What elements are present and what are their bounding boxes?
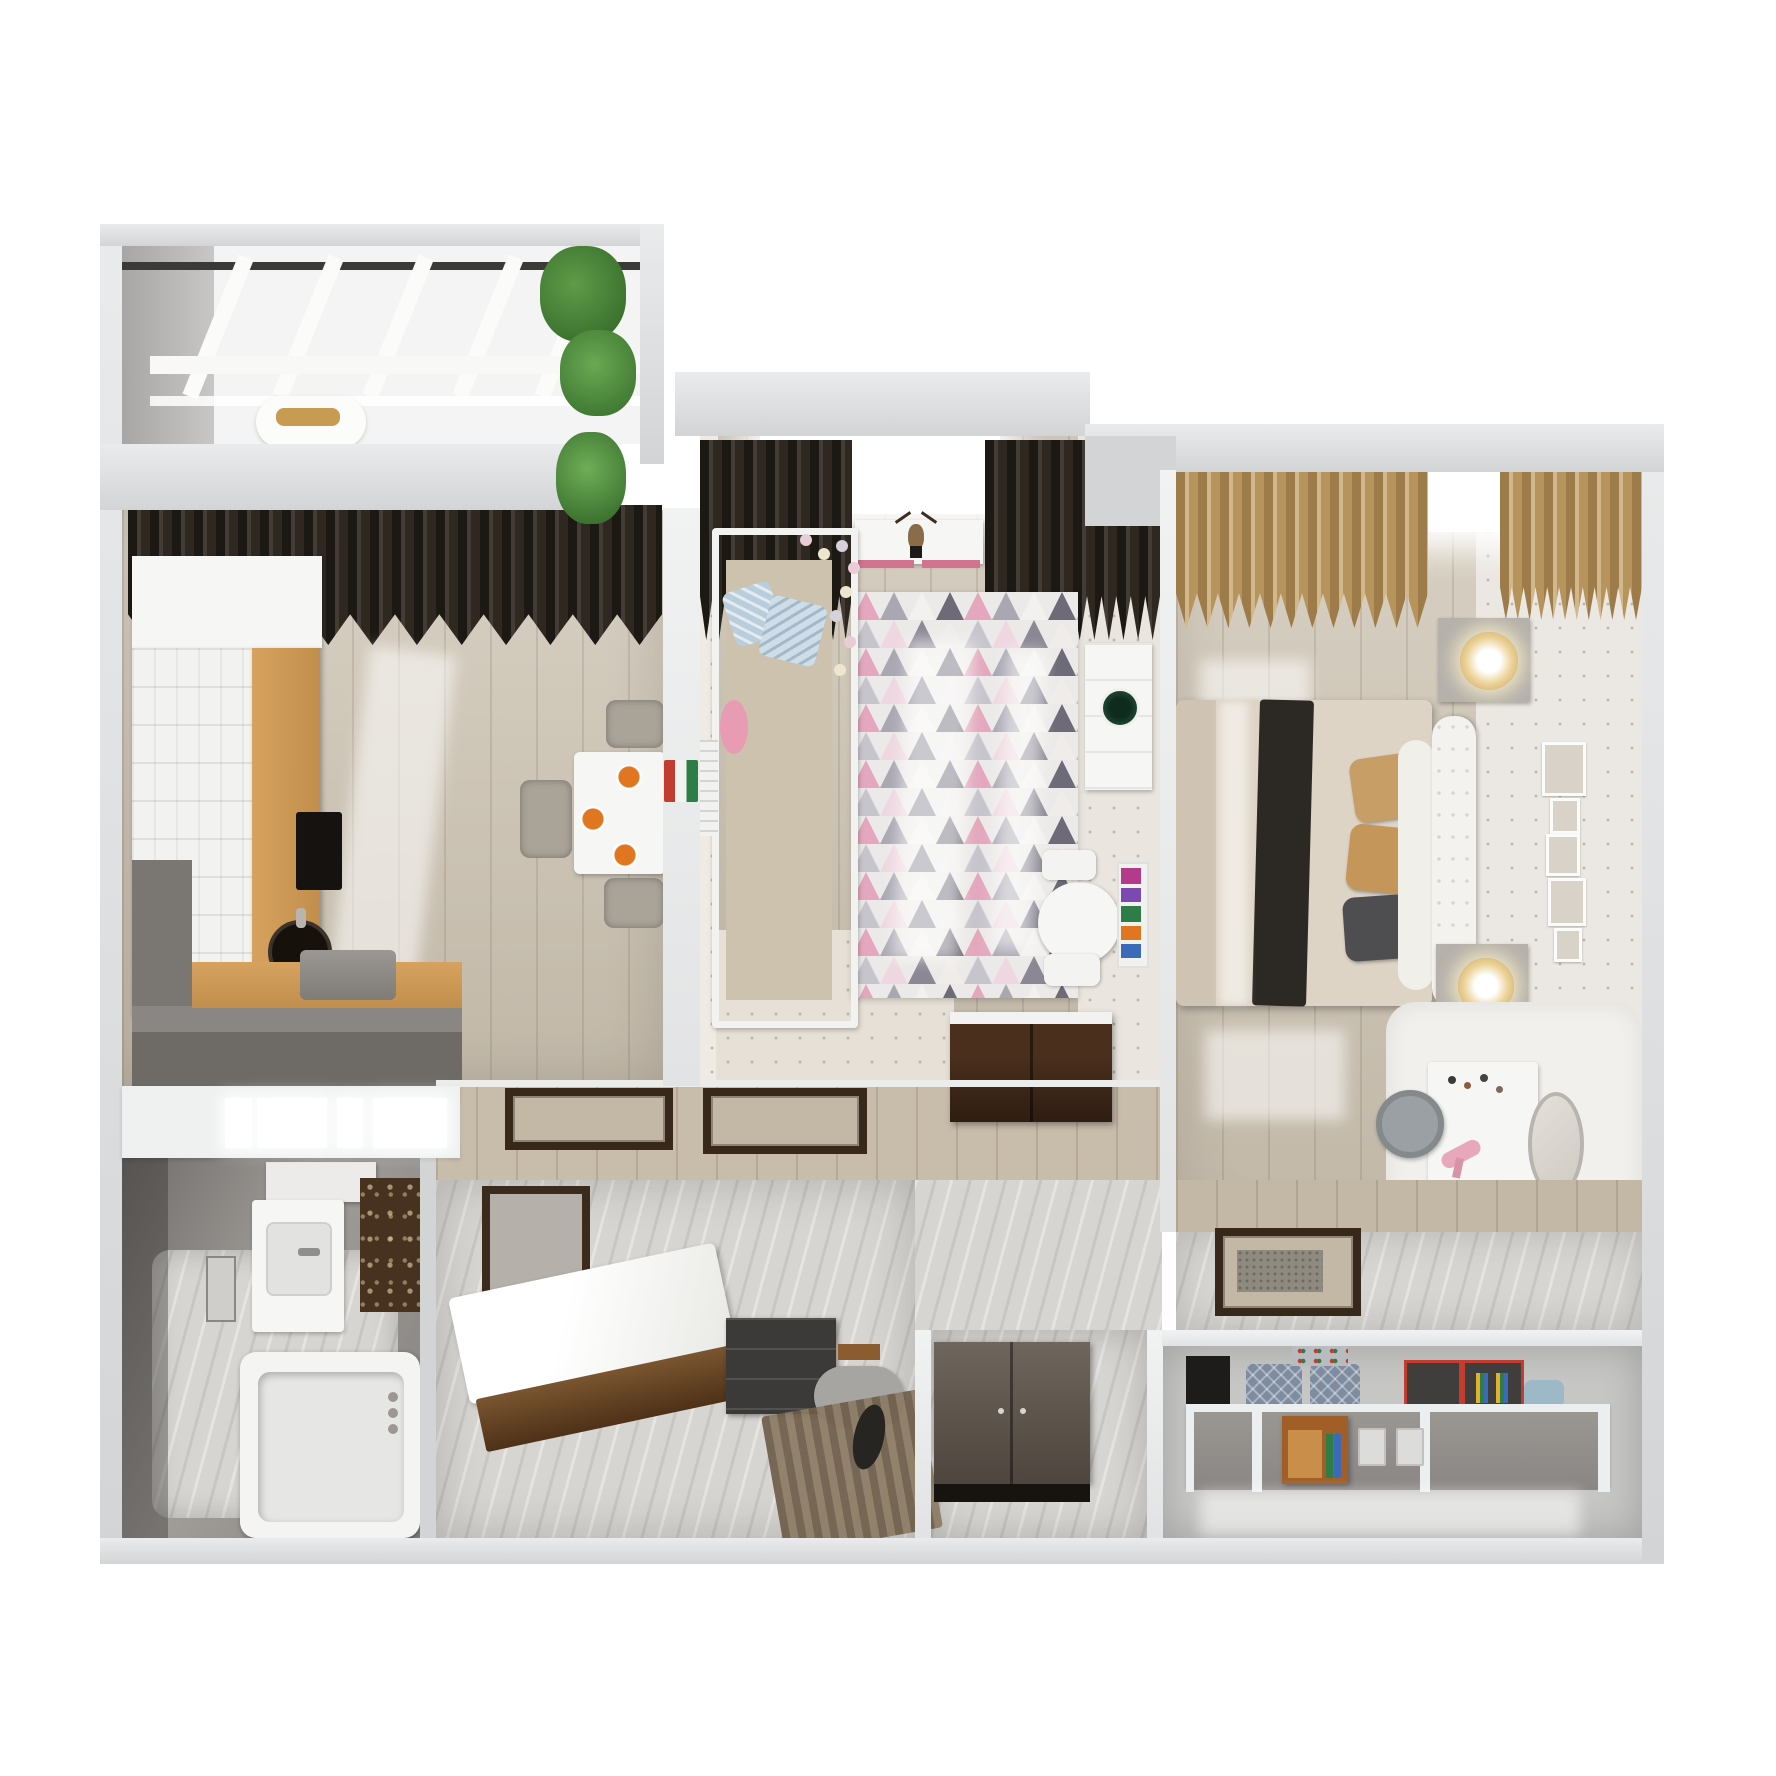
- wood-cabinet-panel: [1288, 1430, 1322, 1478]
- bathroom-mirror: [206, 1256, 236, 1322]
- frosted-panel: [337, 1098, 363, 1148]
- pillow-white: [1398, 740, 1434, 990]
- garland-ball-icon: [834, 664, 846, 676]
- cosmetics-icon: [1480, 1074, 1488, 1082]
- nook-cabinet-base: [934, 1484, 1090, 1502]
- kids-chair: [1044, 954, 1100, 986]
- white-storage-box: [1358, 1428, 1386, 1466]
- shelf-pink-trim: [858, 560, 914, 568]
- wire-basket: [1292, 1346, 1348, 1366]
- book-icon: [1121, 926, 1141, 940]
- kids-table: [1038, 882, 1120, 964]
- partition-rail: [1186, 1404, 1610, 1412]
- kitchen-peninsula: [132, 1006, 462, 1086]
- garland-ball-icon: [800, 534, 812, 546]
- wall-nursery-bedroom: [1160, 470, 1176, 1232]
- shelf-pink-trim: [922, 560, 980, 568]
- frosted-panel: [373, 1098, 447, 1148]
- bed-dark-stripe: [1252, 699, 1314, 1006]
- plate-icon: [616, 764, 642, 790]
- book-icon: [1121, 888, 1141, 902]
- garland-ball-icon: [830, 610, 842, 622]
- plate-icon: [612, 842, 638, 868]
- kitchen-peninsula-side: [132, 860, 192, 1010]
- cosmetics-icon: [1496, 1086, 1503, 1093]
- cosmetics-icon: [1464, 1082, 1471, 1089]
- bread-bin: [300, 950, 396, 1000]
- cosmetics-icon: [1448, 1076, 1456, 1084]
- bed-highlight: [1220, 702, 1248, 1004]
- floorplan-stage: [0, 0, 1776, 1776]
- picture-frame: [1548, 878, 1586, 926]
- wall-outer-left: [100, 224, 122, 1564]
- wall-hallway-nook: [915, 1330, 931, 1538]
- wall-nook-storage: [1147, 1330, 1163, 1538]
- vanity-stool: [1376, 1090, 1444, 1158]
- deer-scarf: [910, 546, 922, 558]
- bathroom-shade: [122, 1158, 168, 1538]
- crescent-pillow: [720, 700, 748, 754]
- table-lamp-icon: [1460, 632, 1518, 690]
- faucet-icon: [298, 1248, 320, 1256]
- nursery-door-threshold: [703, 1088, 867, 1154]
- wall-storage-top: [1162, 1330, 1642, 1346]
- hall-mid-floor: [915, 1180, 1162, 1330]
- garland-ball-icon: [848, 562, 860, 574]
- storage-floor-glow: [1200, 1492, 1580, 1536]
- wall-outer-right: [1642, 424, 1664, 1564]
- bedroom-bottom-wall: [1176, 1180, 1642, 1232]
- balcony-cushion: [276, 408, 340, 426]
- sunlight-patch: [1205, 1030, 1345, 1120]
- garland-ball-icon: [840, 586, 852, 598]
- corridor-baseboard: [436, 1080, 1162, 1087]
- storage-dark-box: [1186, 1356, 1230, 1408]
- plant-icon: [556, 432, 626, 524]
- garland-ball-icon: [836, 540, 848, 552]
- cabinet-seam: [1010, 1342, 1013, 1484]
- frosted-panel: [257, 1098, 327, 1148]
- mini-bookshelf: [664, 760, 698, 802]
- white-storage-box: [1396, 1428, 1424, 1466]
- wall-balcony-right: [640, 224, 664, 464]
- book-icon: [1121, 944, 1141, 958]
- dresser-seam: [1030, 1024, 1033, 1122]
- book-icon: [1334, 1434, 1341, 1478]
- plant-icon: [560, 330, 636, 416]
- partition-post: [1598, 1404, 1610, 1492]
- picture-frame: [1546, 834, 1580, 876]
- picture-frame: [1542, 742, 1586, 796]
- kitchen-door-threshold: [505, 1088, 673, 1150]
- cooktop: [296, 812, 342, 890]
- book-icon: [1121, 868, 1141, 884]
- plant-icon: [540, 246, 626, 342]
- partition-post: [1186, 1404, 1194, 1492]
- cabinet-knob-icon: [998, 1408, 1004, 1414]
- dining-chair: [604, 878, 664, 928]
- frosted-panel: [225, 1098, 252, 1148]
- picture-frame: [1554, 928, 1582, 962]
- bathtub-inner: [258, 1372, 404, 1522]
- wall-nursery-top: [675, 372, 1090, 436]
- book-icon: [1326, 1434, 1333, 1478]
- dining-chair: [520, 780, 572, 858]
- cabinet-knob-icon: [1020, 1408, 1026, 1414]
- dining-chair: [606, 700, 664, 748]
- bedroom-door-mat: [1237, 1250, 1323, 1292]
- tub-faucet-icon: [388, 1408, 398, 1418]
- sink-basin: [266, 1222, 332, 1296]
- book-icon: [1121, 906, 1141, 922]
- green-bowl-decor: [1100, 688, 1140, 728]
- kitchen-upper-cabinets: [132, 556, 322, 648]
- tub-faucet-icon: [388, 1392, 398, 1402]
- wood-ledge: [838, 1344, 880, 1360]
- balcony-left-shade: [122, 246, 214, 444]
- kids-chair: [1042, 850, 1096, 880]
- wall-outer-bottom: [100, 1538, 1664, 1564]
- wall-balcony-top: [100, 224, 664, 246]
- picture-frame: [1550, 798, 1580, 834]
- garland-ball-icon: [844, 636, 856, 648]
- wall-kitchen-top: [100, 444, 614, 510]
- damask-accent-tiles: [360, 1178, 420, 1312]
- faucet-icon: [296, 908, 306, 928]
- plate-icon: [580, 806, 606, 832]
- tub-faucet-icon: [388, 1424, 398, 1434]
- partition-post: [1252, 1404, 1262, 1492]
- radiator: [700, 740, 718, 836]
- garland-ball-icon: [818, 548, 830, 560]
